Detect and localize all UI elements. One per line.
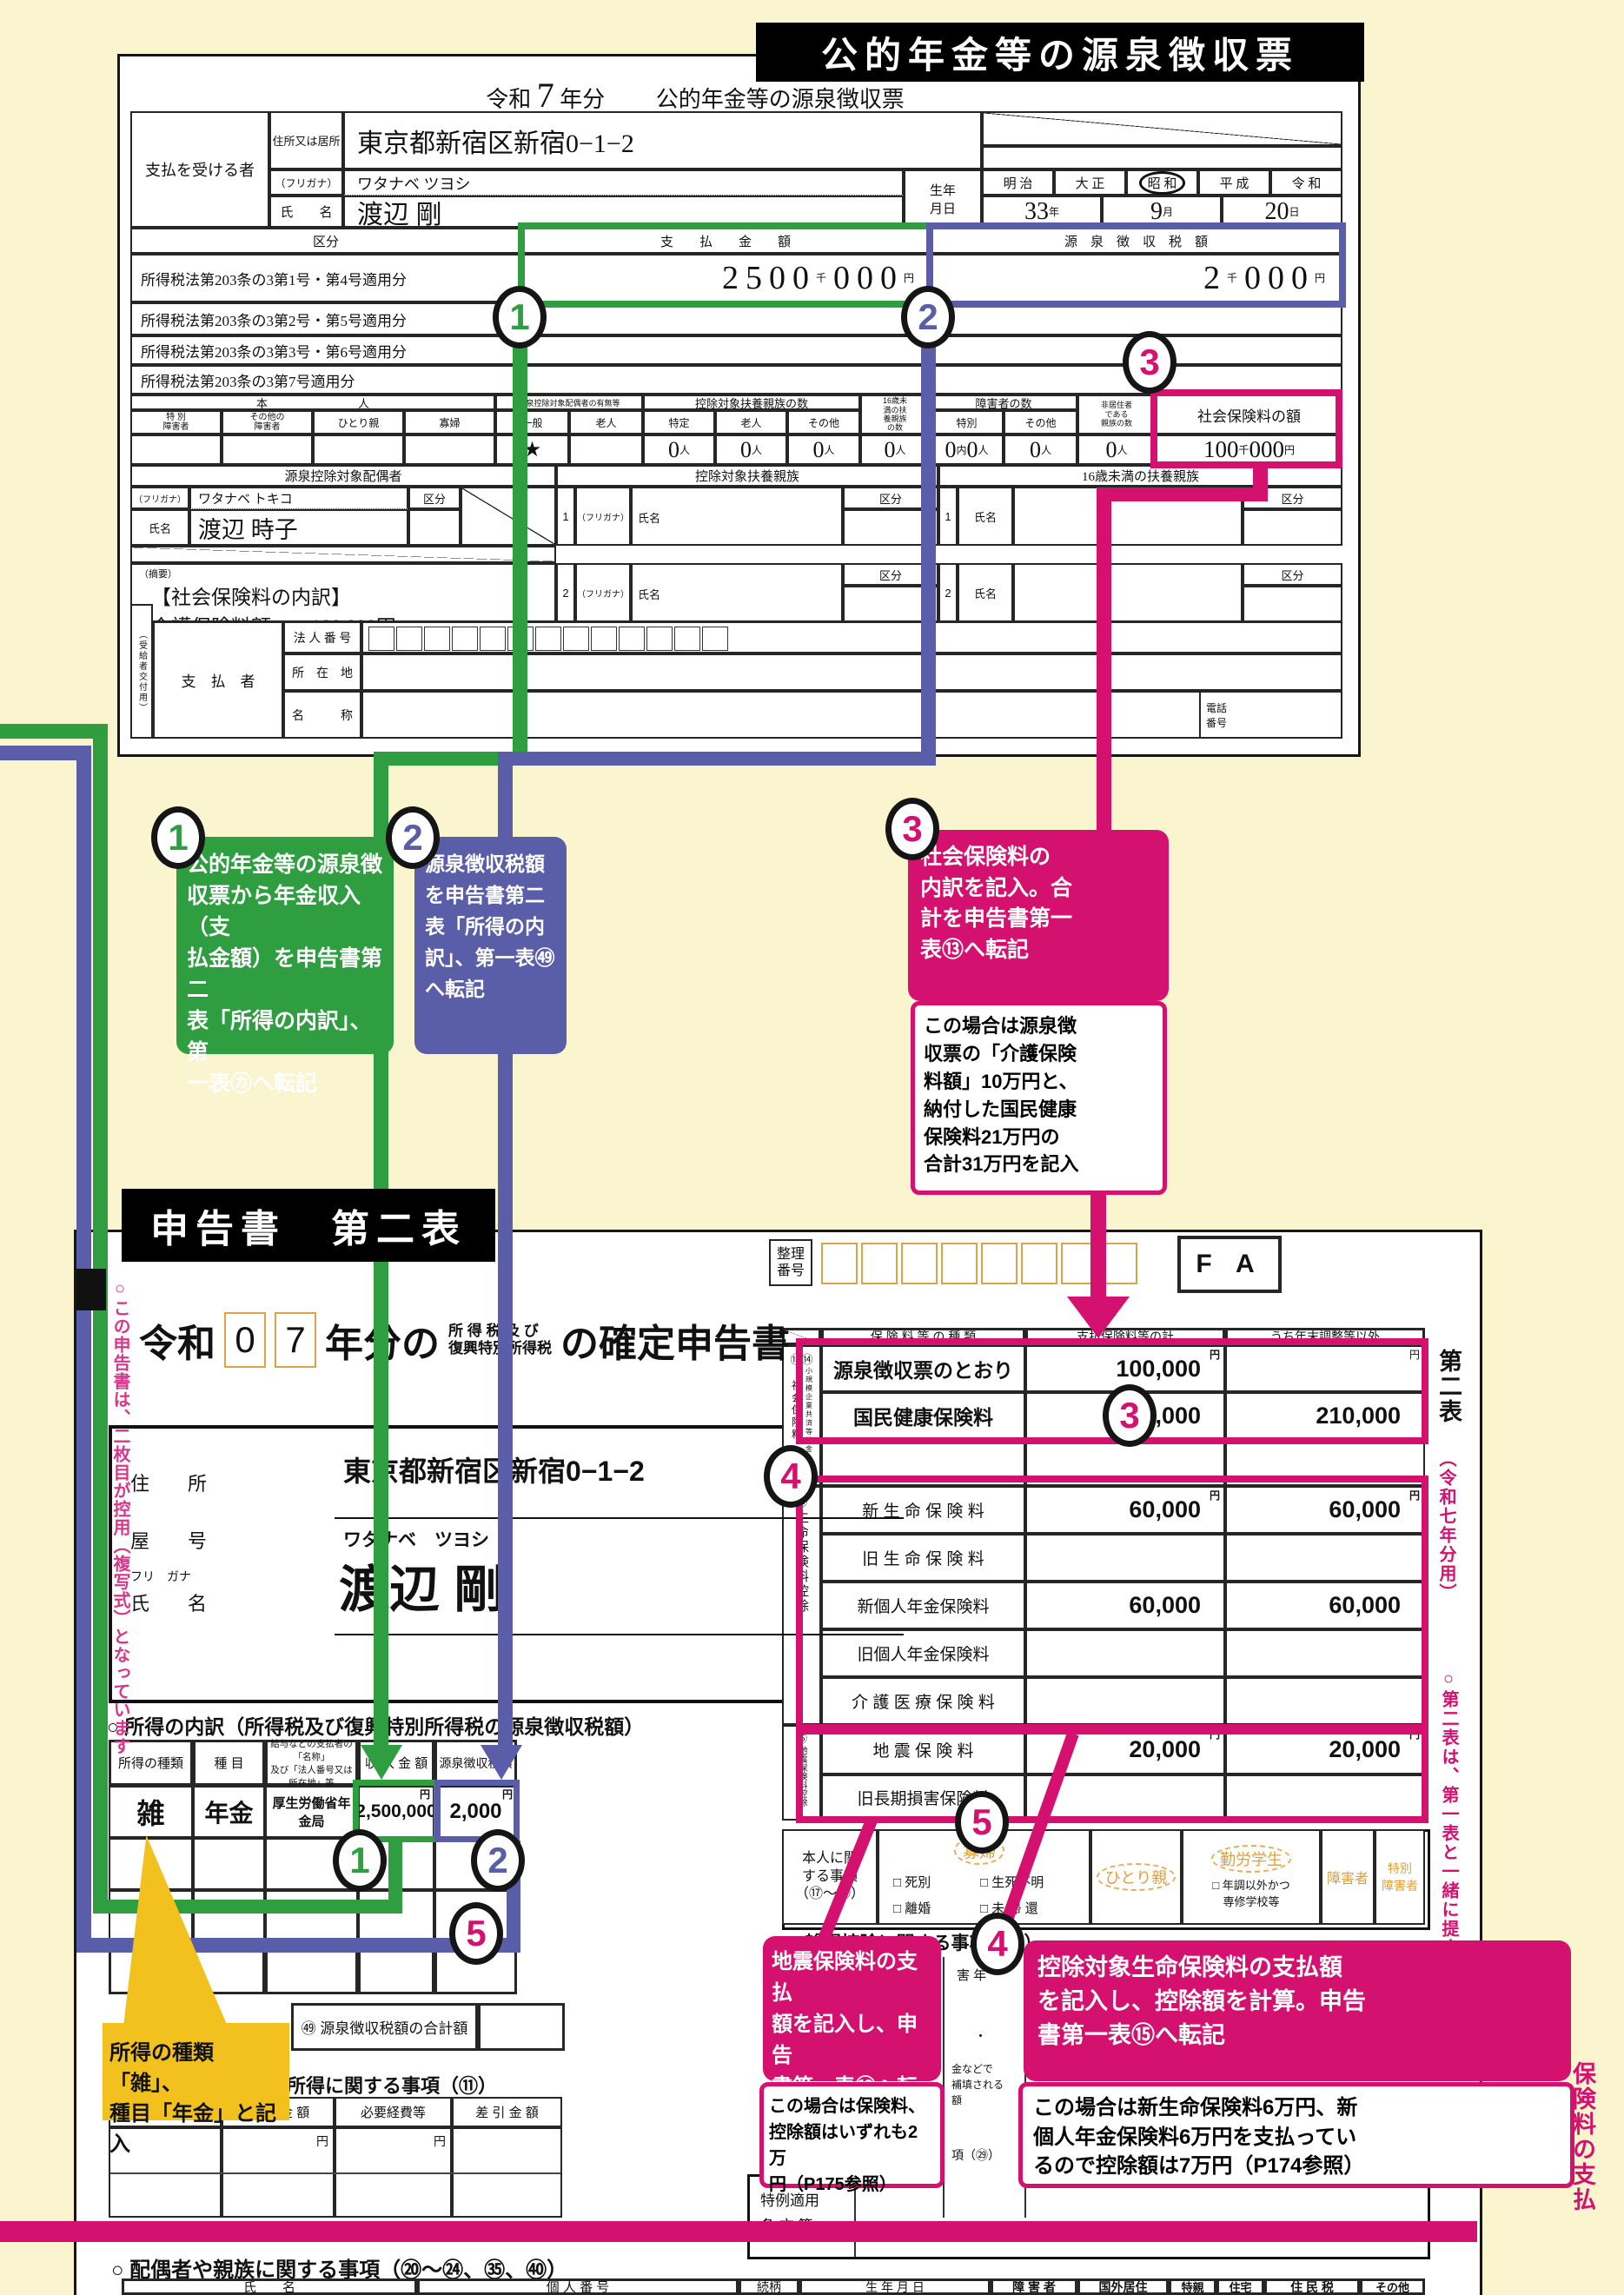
shozaichi-value: [361, 653, 1342, 691]
law-row-3-pay: [521, 335, 930, 365]
u16-header: 16歳未 満の扶 養親族 の数: [860, 395, 930, 434]
val-sht-unit: 人: [978, 445, 989, 455]
fuyou-rownum-1: 1: [556, 487, 575, 546]
family-col-tokushin: 特親: [1169, 2278, 1216, 2295]
shogai-tokubetsu-text: 特別: [956, 415, 977, 430]
spouse-name-text: 渡辺 時子: [198, 511, 298, 545]
sliver-d: 項（㉙）: [951, 2146, 1000, 2164]
law-row-1-text: 所得税法第203条の3第1号・第4号適用分: [141, 268, 407, 289]
label-furigana: フリ ガナ: [130, 1568, 191, 1585]
callout-3-note-text: この場合は源泉徴 収票の「介護保険 料額」10万円と、 納付した国民健康 保険料…: [924, 1015, 1078, 1175]
honnin-tokusho-cell: 特別 障害者: [1375, 1829, 1425, 1925]
marker-2-table: 2: [471, 1829, 525, 1892]
meisho-label: 名 称: [283, 691, 361, 739]
tokutei-header: 特定: [643, 410, 715, 434]
val-sht-zero2: 0: [967, 437, 978, 463]
birth-label-text: 生年 月日: [930, 181, 956, 217]
spouse-kubun-box: [408, 509, 461, 546]
marker-2-form-num: 2: [918, 296, 938, 338]
marker-1-form-num: 1: [509, 296, 529, 338]
val-empty-2: [222, 434, 313, 465]
kafu-check-rikon: □ 離婚: [893, 1899, 931, 1917]
family-col-birth: 生 年 月 日: [799, 2278, 991, 2295]
era-showa-circled: 昭 和: [1139, 171, 1186, 195]
sonota-fuyou-header: その他: [787, 410, 860, 434]
rojin2-text: 老人: [740, 415, 761, 430]
tel-label: 電話 番号: [1206, 700, 1227, 730]
sec11-col4: 差 引 金 額: [452, 2097, 562, 2127]
kana-label-text: （フリガナ）: [275, 176, 337, 190]
era-meiji: 明 治: [982, 169, 1054, 196]
box49-value: [478, 2003, 565, 2051]
callout-4: 控除対象生命保険料の支払額 を記入し、控除額を計算。申告 書第一表⑮へ転記: [1024, 1940, 1571, 2081]
marker-3-table: 3: [1103, 1384, 1157, 1447]
law-row-2-text: 所得税法第203条の3第2号・第5号適用分: [141, 308, 407, 330]
payer-label: 支 払 者: [153, 621, 283, 739]
val-rojin: 0人: [715, 434, 787, 465]
val-tokutei-unit: 人: [679, 445, 690, 455]
payee-name-text: 渡辺 剛: [357, 193, 442, 231]
birth-month-unit: 月: [1163, 207, 1173, 217]
marker-1-callout: 1: [151, 806, 205, 869]
family-col-name-text: 氏 名: [243, 2278, 295, 2295]
callout-5-note: この場合は保険料、 控除額はいずれも2万 円（P175参照）: [759, 2082, 945, 2188]
sonota-shogai-text: その他の 障害者: [250, 413, 285, 432]
family-col-shogai-text: 障 害 者: [1012, 2278, 1056, 2295]
spouse-star: ★: [495, 434, 569, 465]
law-row-3-label: 所得税法第203条の3第3号・第6号適用分: [130, 335, 521, 365]
u16-kubun-label-2: 区分: [1243, 563, 1342, 586]
empty-strip: [982, 146, 1342, 169]
u16-sec-header-text: 16歳未満の扶養親族: [1082, 467, 1199, 485]
marker-5-uchiwake: 5: [449, 1902, 503, 1965]
birth-day-unit: 日: [1289, 207, 1299, 217]
shinkoku-title-tail: の確定申告書: [560, 1312, 790, 1368]
callout-1-text: 公的年金等の源泉徴 収票から年金収入（支 払金額）を申告書第二 表「所得の内訳」…: [187, 852, 382, 1096]
shogai-header: 障害者の数: [930, 395, 1077, 410]
tekiyo: （摘要） 【社会保険料の内訳】 介護保険料額 100,000円: [130, 563, 556, 622]
uchiwake-payer-text: 厚生労働省年金局: [267, 1794, 356, 1830]
side-reiwa-nenbun: （令和七年分用）: [1434, 1449, 1459, 1602]
purple-left-entry: [0, 746, 91, 760]
val-empty-1: [130, 434, 222, 465]
spouse-name-label-text: 氏名: [149, 520, 171, 536]
green-frame-pay: [518, 222, 933, 308]
banner-gensen: 公的年金等の源泉徴収票: [756, 23, 1364, 82]
marker-5-uchiwake-num: 5: [466, 1913, 486, 1954]
purple-frame-tax: [926, 222, 1346, 308]
purple-left-trunk: [76, 759, 91, 1953]
val-rojin-zero: 0: [740, 437, 752, 463]
fa-box-text: F A: [1196, 1250, 1263, 1279]
sliver-b: ・: [974, 2026, 987, 2045]
hitorioya-header: ひとり親: [313, 410, 404, 434]
yellow-callout: 所得の種類「雑」、 種目「年金」と記入: [103, 2023, 289, 2120]
val-empty-5: [569, 434, 643, 465]
val-shogai-tokubetsu: 0内0人: [930, 434, 1004, 465]
era-reiwa-text: 令 和: [1292, 174, 1322, 192]
fuyou-num-header: 控除対象扶養親族の数: [643, 395, 860, 410]
spouse-name-label: 氏名: [130, 509, 189, 546]
marker-5-table: 5: [955, 1791, 1009, 1854]
pink-bottom-band: [0, 2221, 1477, 2242]
era-meiji-text: 明 治: [1004, 174, 1033, 192]
payee-kana: ワタナベ ツヨシ: [343, 169, 904, 196]
rojin2-header: 老人: [715, 410, 787, 434]
val-hikyoju: 0人: [1077, 434, 1156, 465]
callout-4-note-text: この場合は新生命保険料6万円、新 個人年金保険料6万円を支払ってい るので控除額…: [1033, 2096, 1364, 2178]
tokubetsu-shogai-header: 特 別 障害者: [130, 410, 222, 434]
val-u16-zero: 0: [884, 437, 895, 463]
sec11-midline: [110, 2172, 560, 2174]
family-col-sonota-text: その他: [1375, 2278, 1409, 2295]
spouse-sec-header-text: 源泉控除対象配偶者: [284, 467, 401, 485]
spouse-diag: [461, 487, 556, 546]
birth-year-value: 33: [1024, 198, 1049, 226]
family-col-tokushin-text: 特親: [1181, 2278, 1203, 2295]
sec11-yen-1: 円: [316, 2132, 328, 2150]
val-sonota: 0人: [787, 434, 860, 465]
pink-frame-shaho: [1150, 389, 1342, 468]
pink-to-callout3: [1097, 488, 1111, 832]
callout-5-note-text: この場合は保険料、 控除額はいずれも2万 円（P175参照）: [769, 2097, 925, 2194]
gensen-title-name: 公的年金等の源泉徴収票: [656, 87, 905, 112]
val-u16: 0人: [860, 434, 930, 465]
sonota-shogai-header: その他の 障害者: [222, 410, 313, 434]
marker-1-callout-num: 1: [168, 817, 188, 859]
hikyoju-header: 非居住者 である 親族の数: [1077, 395, 1156, 434]
marker-3-form: 3: [1123, 331, 1177, 394]
family-col-zokugara-text: 続柄: [757, 2278, 781, 2295]
spouse-kubun-label: 区分: [408, 487, 461, 509]
green-arrowhead: [361, 1745, 402, 1780]
pink-frame-jishin: [796, 1728, 1428, 1823]
uchiwake-col-type-text: 所得の種類: [118, 1754, 183, 1772]
u16-name-label-2: 氏名: [958, 563, 1013, 622]
payee-label-text: 支払を受ける者: [145, 158, 255, 181]
val-hik-unit: 人: [1117, 445, 1127, 455]
marker-1-table: 1: [333, 1829, 387, 1892]
shogai-sonota-header: その他: [1004, 410, 1077, 434]
callout-3: 社会保険料の 内訳を記入。合 計を申告書第一 表⑬へ転記: [908, 830, 1169, 1001]
family-col-kokugai-text: 国外居住: [1099, 2278, 1148, 2295]
gensen-title-suffix: 年分: [560, 87, 605, 112]
payee-address: 東京都新宿区新宿0−1−2: [343, 111, 982, 169]
purple-jog: [498, 752, 936, 766]
callout-4-text: 控除対象生命保険料の支払額 を記入し、控除額を計算。申告 書第一表⑮へ転記: [1037, 1954, 1366, 2048]
box49-label-text: ㊾ 源泉徴収税額の合計額: [302, 2016, 468, 2038]
family-col-shogai: 障 害 者: [991, 2278, 1077, 2295]
u16-kubun-box-1: [1243, 509, 1342, 546]
green-left-entry: [0, 724, 108, 739]
era-taisho-text: 大 正: [1076, 174, 1105, 192]
kubun-header-text: 区分: [313, 232, 339, 250]
era-reiwa: 令 和: [1270, 169, 1342, 196]
kafu-text: 寡婦: [439, 415, 460, 430]
fa-box: F A: [1177, 1236, 1282, 1293]
val-shogai-sonota: 0人: [1004, 434, 1077, 465]
zasson-sliver: 害 年 ・ 金などで 補填される 額 項（㉙）: [943, 1957, 1026, 2218]
sec11-heading: 所得に関する事項（⑪）: [287, 2071, 497, 2099]
hojin-label: 法 人 番 号: [283, 621, 361, 653]
year-box-1: 0: [224, 1312, 266, 1368]
sec11-col3-text: 必要経費等: [361, 2103, 426, 2121]
u16-name-label-2-text: 氏名: [974, 585, 997, 601]
u16-name-label-1-text: 氏名: [974, 508, 997, 525]
val-sonota-zero: 0: [812, 437, 824, 463]
rojin-text: 老人: [595, 415, 616, 430]
purple-arrowhead: [481, 1745, 522, 1780]
fuyou-rownum-2: 2: [556, 563, 575, 622]
fuyou-name-label-2: 氏名: [638, 586, 660, 602]
banner-gensen-label: 公的年金等の源泉徴収票: [821, 26, 1299, 79]
hojin-row: [361, 621, 1342, 653]
fuyou-labels-1: （フリガナ）: [575, 487, 631, 546]
marker-4-callout-num: 4: [987, 1923, 1007, 1965]
green-left-trunk: [93, 738, 108, 1914]
family-col-juminzei-text: 住 民 税: [1290, 2278, 1334, 2295]
kinro-check: □ 年調以外かつ 専修学校等: [1212, 1876, 1289, 1909]
marker-4-table: 4: [764, 1445, 818, 1508]
uchiwake-payer: 厚生労働省年金局: [265, 1786, 358, 1838]
left-copy-note: ○この申告書は、二枚目が控用（複写式）となっています: [108, 1279, 133, 1755]
family-col-birth-text: 生 年 月 日: [865, 2278, 925, 2295]
pink-jog: [1097, 488, 1268, 501]
val-tokutei-zero: 0: [668, 437, 679, 463]
birth-month-value: 9: [1150, 198, 1163, 226]
marker-2-table-num: 2: [487, 1840, 507, 1881]
birth-label: 生年 月日: [904, 169, 982, 228]
fuyou-kana-label-1: （フリガナ）: [577, 510, 629, 523]
seiri-label-text: 整理 番号: [777, 1246, 805, 1279]
uchiwake-col-payer: 給与などの支払者の「名称」 及び「法人番号又は所在地」等: [265, 1740, 358, 1786]
shogai-sonota-text: その他: [1024, 415, 1056, 430]
u16-header-text: 16歳未 満の扶 養親族 の数: [883, 396, 907, 432]
shogai-header-text: 障害者の数: [975, 395, 1031, 411]
banner-shinkoku-label: 申告書 第二表: [150, 1197, 467, 1253]
sliver-c: 金などで 補填される 額: [951, 2061, 1004, 2108]
gensen-title-era: 令和: [486, 87, 531, 112]
shozaichi-label: 所 在 地: [283, 653, 361, 691]
era-heisei-text: 平 成: [1220, 174, 1249, 192]
uchiwake-r3c2: [193, 1890, 265, 1942]
fuyou-sec-header: 控除対象扶養親族: [556, 465, 938, 487]
uchiwake-item: 年金: [193, 1786, 265, 1838]
marker-5-table-num: 5: [971, 1801, 991, 1843]
marker-3-table-num: 3: [1119, 1395, 1139, 1436]
spouse-diag-strip: [130, 546, 556, 563]
era-showa: 昭 和: [1126, 169, 1198, 196]
purple-line-form: [921, 308, 936, 752]
law-row-2-label: 所得税法第203条の3第2号・第5号適用分: [130, 302, 521, 335]
shinkoku-address: 東京都新宿区新宿0−1−2: [343, 1449, 645, 1489]
shogai-tokubetsu-header: 特別: [930, 410, 1004, 434]
family-col-jutaku: 住宅: [1216, 2278, 1264, 2295]
marker-3-callout: 3: [885, 798, 939, 860]
u16-kubun-label-2-text: 区分: [1281, 567, 1303, 583]
payer-label-text: 支 払 者: [182, 669, 255, 691]
family-col-jutaku-text: 住宅: [1229, 2278, 1251, 2295]
callout-5: 地震保険料の支払 額を記入し、申告 書第一表⑯へ転記: [763, 1936, 941, 2081]
hitorioya-text: ひとり親: [338, 415, 380, 430]
val-hik-zero: 0: [1105, 437, 1117, 463]
fuyou-name-2: 氏名: [631, 563, 843, 622]
uchiwake-type-text: 雑: [136, 1792, 164, 1832]
val-empty-4: [404, 434, 495, 465]
family-col-mynumber: 個 人 番 号: [417, 2278, 739, 2295]
kinro-option: 勤労学生: [1211, 1845, 1291, 1873]
pink-frame-seimei: [796, 1476, 1428, 1731]
registration-mark: [76, 1269, 106, 1310]
callout-1: 公的年金等の源泉徴 収票から年金収入（支 払金額）を申告書第二 表「所得の内訳」…: [176, 837, 394, 1054]
family-col-name: 氏 名: [122, 2278, 417, 2295]
hitorioya-option: ひとり親: [1097, 1863, 1176, 1891]
val-empty-3: [313, 434, 404, 465]
tekiyo-label: （摘要）: [139, 567, 177, 580]
payee-kana-text: ワタナベ ツヨシ: [357, 172, 471, 195]
spouse-kana: ワタナベ トキコ: [189, 487, 408, 509]
sec11-col3: 必要経費等: [335, 2097, 452, 2127]
shinkoku-title-era: 令和: [139, 1312, 215, 1368]
label-yago: 屋 号: [130, 1526, 207, 1554]
sonota-fuyou-text: その他: [808, 415, 839, 430]
tokubetsu-shogai-text: 特 別 障害者: [163, 413, 189, 432]
law-row-4-pay: [521, 365, 930, 395]
tekiyo-line1: 【社会保険料の内訳】: [139, 580, 351, 610]
side-daini-hyo: 第二表: [1432, 1349, 1466, 1424]
family-col-zokugara: 続柄: [739, 2278, 799, 2295]
fuyou-num-header-text: 控除対象扶養親族の数: [695, 395, 808, 411]
u16-rownum-2: 2: [938, 563, 958, 622]
val-shs-zero: 0: [1030, 437, 1041, 463]
fuyou-name-1: 氏名: [631, 487, 843, 546]
law-row-1-label: 所得税法第203条の3第1号・第4号適用分: [130, 254, 521, 302]
pink-arrowhead: [1067, 1297, 1130, 1338]
marker-3-form-num: 3: [1139, 342, 1159, 383]
tokutei-text: 特定: [668, 415, 689, 430]
green-line-form: [513, 308, 527, 752]
spouse-sec-header: 源泉控除対象配偶者: [130, 465, 556, 487]
spouse-umu-header-text: 源泉控除対象配偶者の有無等: [518, 397, 620, 408]
law-row-4-text: 所得税法第203条の3第7号適用分: [141, 369, 355, 391]
marker-3-callout-num: 3: [902, 808, 922, 850]
addr-label-text: 住所又は居所: [272, 132, 340, 149]
purple-arrow-shaft: [498, 1051, 513, 1747]
ippan-header: 一般: [495, 410, 569, 434]
family-col-kokugai: 国外居住: [1077, 2278, 1169, 2295]
pink-arrow-shaft: [1090, 1193, 1106, 1299]
honnin-hitori-cell: ひとり親: [1090, 1829, 1182, 1925]
fuyou-name-label-1: 氏名: [638, 509, 660, 526]
val-u16-unit: 人: [895, 445, 905, 455]
u16-kubun-label-1-text: 区分: [1281, 490, 1303, 507]
honnin-kinro-cell: 勤労学生 □ 年調以外かつ 専修学校等: [1182, 1829, 1321, 1925]
marker-1-table-num: 1: [349, 1840, 369, 1881]
kana-label: （フリガナ）: [269, 169, 343, 196]
honnin-header-text: 本 人: [256, 395, 369, 411]
u16-rownum-1-text: 1: [945, 510, 951, 523]
green-stub: [388, 1841, 402, 1905]
marker-2-callout: 2: [386, 806, 440, 869]
val-tokutei: 0人: [643, 434, 715, 465]
honnin-header: 本 人: [130, 395, 495, 410]
callout-3-note: この場合は源泉徴 収票の「介護保険 料額」10万円と、 納付した国民健康 保険料…: [911, 1001, 1167, 1195]
purple-to-callout2: [498, 766, 513, 840]
u16-rownum-2-text: 2: [945, 587, 951, 600]
kafu-header: 寡婦: [404, 410, 495, 434]
page: 公的年金等の源泉徴収票 令和 7 年分 公的年金等の源泉徴収票 支払を受ける者 …: [0, 0, 1624, 2295]
callout-4-note: この場合は新生命保険料6万円、新 個人年金保険料6万円を支払ってい るので控除額…: [1018, 2082, 1574, 2188]
label-jusho: 住 所: [130, 1469, 207, 1496]
hikyoju-header-text: 非居住者 である 親族の数: [1101, 401, 1132, 428]
hojin-boxes: [368, 627, 728, 651]
kafu-check-shibetsu: □ 死別: [893, 1873, 931, 1891]
meisho-value: [361, 691, 1342, 739]
green-arrow-shaft: [374, 1051, 388, 1747]
birth-year-unit: 年: [1049, 207, 1059, 217]
spouse-kana-label-text: （フリガナ）: [134, 492, 186, 505]
marker-4-table-num: 4: [780, 1456, 800, 1497]
tel-cell: 電話 番号: [1199, 691, 1342, 739]
uchiwake-col-payer-text: 給与などの支払者の「名称」 及び「法人番号又は所在地」等: [268, 1737, 355, 1789]
fuyou-labels-2: （フリガナ）: [575, 563, 631, 622]
marker-2-form: 2: [901, 286, 955, 348]
callout-3-text: 社会保険料の 内訳を記入。合 計を申告書第一 表⑬へ転記: [920, 845, 1072, 962]
val-sht-zero1: 0: [945, 437, 956, 463]
callout-2-text: 源泉徴収税額 を申告書第二 表「所得の内 訳」、第一表㊾ へ転記: [425, 852, 555, 1000]
name-label: 氏 名: [269, 196, 343, 228]
rojin-header: 老人: [569, 410, 643, 434]
law-row-3-text: 所得税法第203条の3第3号・第6号適用分: [141, 340, 407, 361]
val-sonota-unit: 人: [824, 445, 834, 455]
fuyou-rownum-1-text: 1: [562, 510, 568, 523]
u16-rownum-1: 1: [938, 487, 958, 546]
name-label-text: 氏 名: [280, 202, 332, 221]
honnin-shogai-cell: 障害者: [1321, 1829, 1375, 1925]
u16-kubun-box-2: [1243, 586, 1342, 622]
uchiwake-r2c2: [193, 1838, 265, 1890]
family-col-mynumber-text: 個 人 番 号: [547, 2278, 610, 2295]
uchiwake-col-item-text: 種 目: [214, 1754, 243, 1772]
law-row-4-label: 所得税法第203条の3第7号適用分: [130, 365, 521, 395]
box49-label: ㊾ 源泉徴収税額の合計額: [291, 2003, 478, 2051]
marker-1-form: 1: [493, 286, 547, 348]
u16-name-2: [1013, 563, 1243, 622]
marker-2-callout-num: 2: [402, 817, 422, 859]
kubun-header: 区分: [130, 228, 521, 254]
year-box-2: 7: [275, 1312, 316, 1368]
payer-side-text: （受給者交付用）: [136, 630, 149, 713]
shozaichi-label-text: 所 在 地: [292, 664, 353, 681]
payee-label: 支払を受ける者: [130, 111, 269, 228]
uchiwake-col-item: 種 目: [193, 1740, 265, 1786]
tokusho-option: 特別 障害者: [1382, 1860, 1418, 1894]
fuyou-rownum-2-text: 2: [562, 587, 568, 600]
gensen-title-year: 7: [537, 76, 554, 115]
spouse-name: 渡辺 時子: [189, 509, 408, 546]
val-shs-unit: 人: [1041, 445, 1051, 455]
hojin-label-text: 法 人 番 号: [294, 629, 352, 647]
spouse-kana-label: （フリガナ）: [130, 487, 189, 509]
seiri-label: 整理 番号: [769, 1239, 812, 1286]
shinkoku-name: 渡辺 剛: [339, 1549, 504, 1622]
sec11-col4-text: 差 引 金 額: [475, 2103, 539, 2121]
fuyou-kana-label-2: （フリガナ）: [577, 587, 629, 600]
fuyou-sec-header-text: 控除対象扶養親族: [695, 467, 799, 485]
uchiwake-item-text: 年金: [204, 1794, 253, 1829]
family-col-juminzei: 住 民 税: [1264, 2278, 1360, 2295]
uchiwake-r3c3: [265, 1890, 358, 1942]
